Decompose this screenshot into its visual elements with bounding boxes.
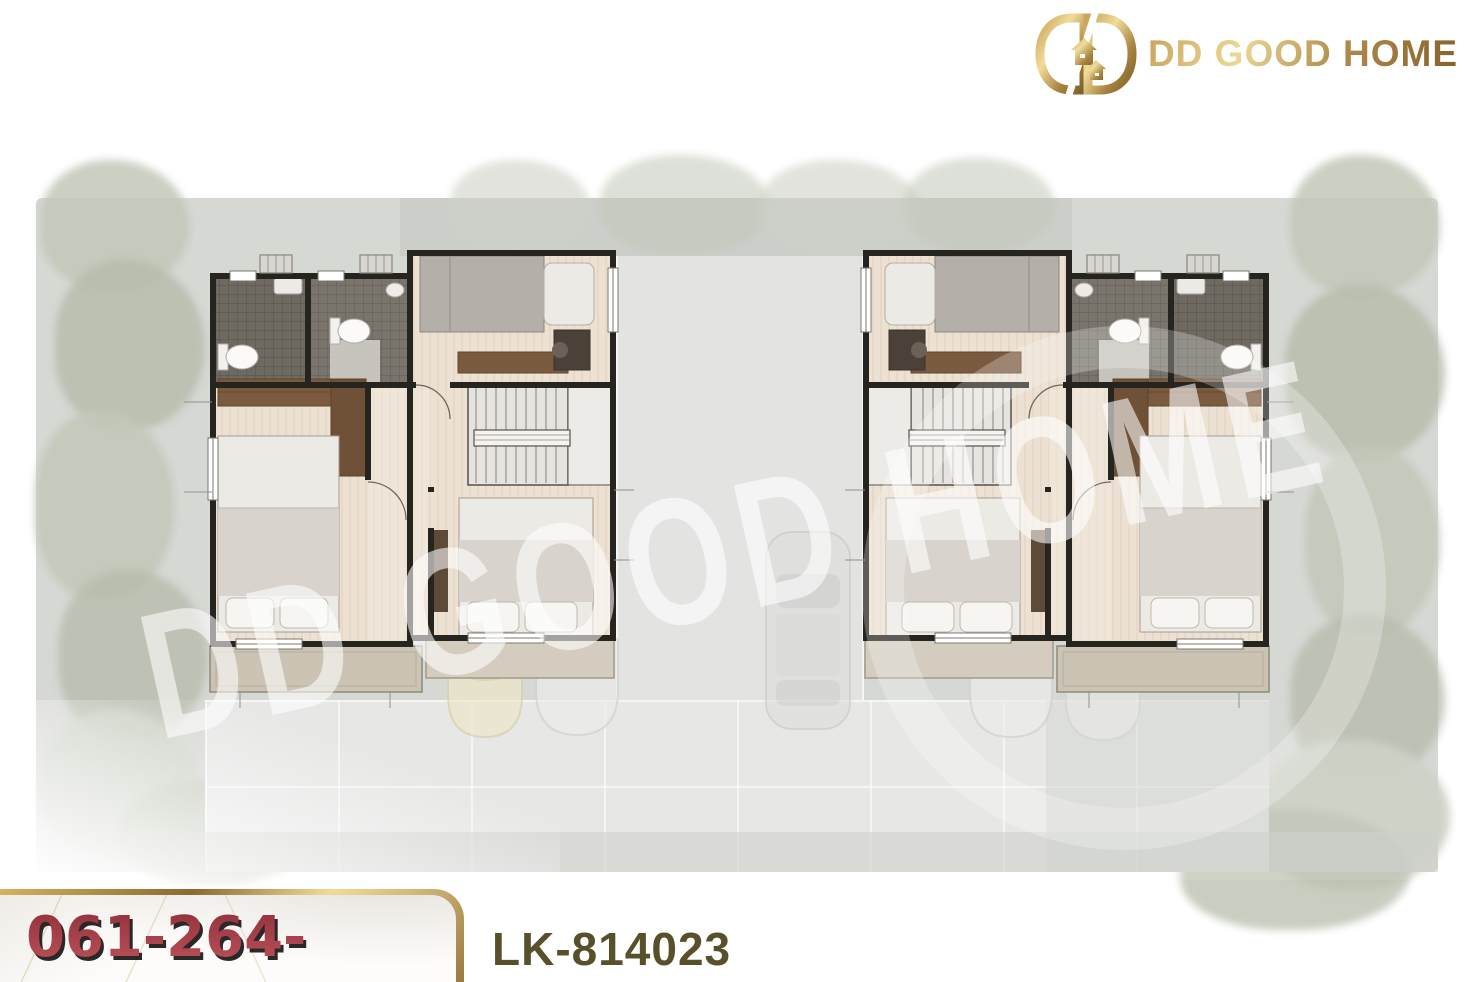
floor-plan-left-unit <box>180 238 640 710</box>
house-icon <box>1071 38 1097 65</box>
phone-box: 061-264-6442 <box>0 889 464 982</box>
phone-box-inner: 061-264-6442 <box>0 895 456 982</box>
listing-image: DD GOOD HOME DD GOOD HOME 061-264-6442 L… <box>0 0 1474 982</box>
watermark-ring <box>862 326 1386 850</box>
brand-name: DD GOOD HOME <box>1148 33 1458 75</box>
listing-code: LK-814023 <box>492 922 731 976</box>
phone-number: 061-264-6442 <box>0 895 456 982</box>
brand-logo-icon <box>1034 8 1138 100</box>
corner-fade <box>0 700 560 890</box>
brand-logo: DD GOOD HOME <box>1034 8 1458 100</box>
